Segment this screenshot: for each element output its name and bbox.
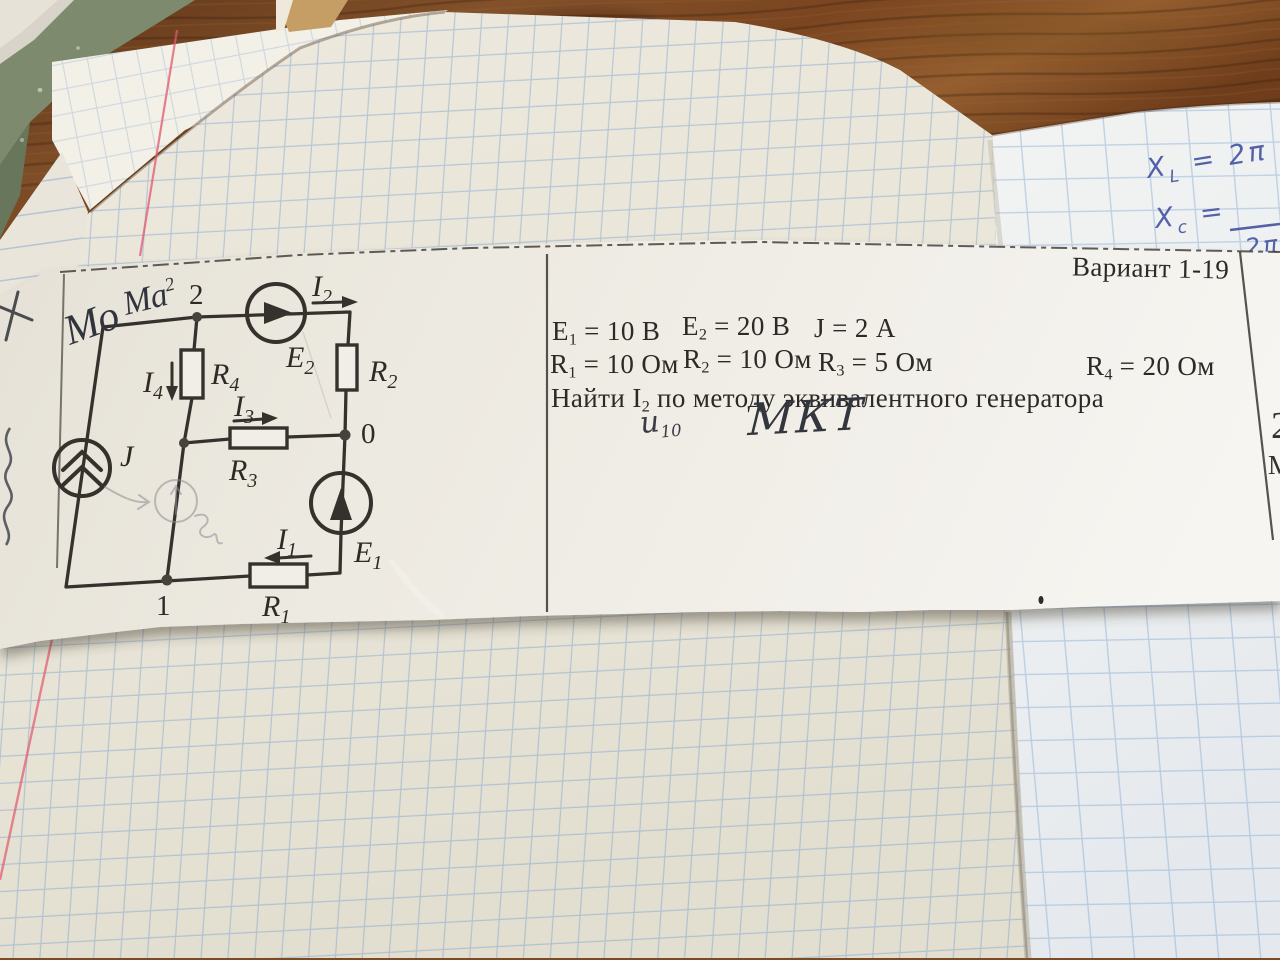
node-0-dot [340, 430, 351, 441]
scene-graphics: XL = 2π Xc = 2π [0, 0, 1280, 960]
resistor-R2 [337, 345, 357, 390]
node-mid-dot [179, 438, 189, 448]
node-0-label: 0 [361, 418, 376, 450]
fragment-bottom: М [1268, 450, 1280, 480]
fragment-top: 2 [1271, 405, 1280, 447]
node-1-dot [162, 575, 173, 586]
resistor-R4 [181, 350, 203, 398]
problem-strip: 2 0 1 J E2 E1 R2 R4 R3 R1 I2 I3 I4 I1 [0, 240, 1280, 649]
label-J: J [120, 440, 135, 473]
node-2-label: 2 [189, 279, 204, 311]
resistor-R3 [230, 428, 287, 448]
ink-speck [1039, 596, 1044, 604]
resistor-R1 [250, 564, 307, 587]
node-2-dot [192, 312, 202, 322]
node-1-label: 1 [156, 590, 171, 622]
photo-of-problem-sheet: XL = 2π Xc = 2π [0, 0, 1280, 960]
